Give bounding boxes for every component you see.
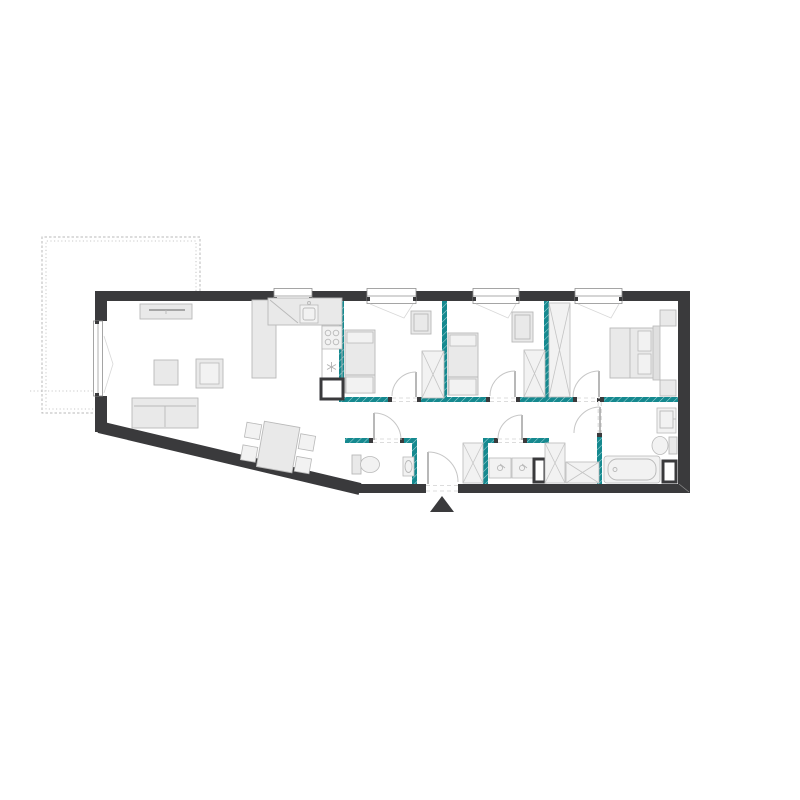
hallway-wall-segment [516, 397, 577, 402]
left-wall-upper [95, 291, 107, 321]
dining-chair [240, 445, 257, 462]
double-bed [610, 326, 660, 380]
bedroom3-door [573, 371, 600, 402]
bottom-wall-left [352, 484, 426, 493]
cabinet [463, 443, 483, 483]
entry-and-bath-middle [463, 443, 599, 483]
living-room [132, 304, 317, 476]
terrace-outer-line [42, 237, 200, 413]
dresser [512, 312, 533, 342]
window [575, 289, 622, 319]
single-bed [345, 330, 375, 393]
kitchen-sink [300, 302, 318, 324]
tv-sideboard [140, 304, 192, 319]
bedroom2-door [490, 371, 516, 402]
floor-plan-page [0, 0, 800, 800]
bedroom1-door [392, 372, 417, 402]
vent-shaft [663, 461, 676, 482]
bathroom-right [604, 408, 677, 483]
top-wall-segment [416, 291, 473, 301]
hallway-wall-segment [339, 397, 392, 402]
bathroom-middle-door [498, 415, 523, 443]
bath-side-wall [483, 443, 488, 484]
bottom-wall-right [458, 484, 690, 493]
dresser [411, 311, 431, 334]
armchair [196, 359, 223, 388]
bedroom-3 [549, 303, 676, 397]
cooktop [322, 326, 342, 349]
wc-wall-segment [345, 438, 373, 443]
toilet [652, 437, 677, 455]
washbasin [657, 408, 676, 433]
toilet [352, 455, 380, 474]
hallway-wall-segment [600, 397, 678, 402]
dining-chair [244, 422, 261, 439]
floor-plan-drawing [0, 0, 800, 800]
washbasin [403, 457, 414, 476]
bedroom-2 [448, 312, 545, 397]
appliance-snowflake-icon [327, 362, 336, 372]
bathtub [604, 456, 660, 483]
dining-table [256, 421, 299, 473]
nightstand [660, 380, 676, 396]
coffee-table [154, 360, 178, 385]
entrance-triangle [430, 496, 454, 512]
balcony-door-window [94, 321, 114, 396]
top-wall-segment [519, 291, 575, 301]
diagonal-wall [99, 427, 360, 489]
sofa [132, 398, 198, 428]
entrance-door [426, 452, 458, 491]
wc-door [373, 413, 401, 443]
terrace-outline [30, 237, 200, 413]
window [367, 289, 416, 319]
dining-chair [294, 456, 311, 473]
single-bed [448, 333, 478, 395]
nightstand [660, 310, 676, 326]
bathroom-right-door [574, 402, 601, 433]
wardrobe [422, 351, 444, 398]
wardrobe [549, 303, 570, 397]
washbasin [512, 458, 533, 478]
dining-chair [298, 434, 315, 451]
kitchen [252, 298, 343, 399]
wc [352, 455, 414, 476]
vent-shaft [534, 459, 545, 482]
wardrobe [524, 350, 545, 397]
washbasin [489, 458, 511, 478]
vent-shaft [321, 379, 343, 399]
wardrobe [545, 443, 565, 483]
right-wall [678, 291, 690, 493]
top-wall-segment [95, 291, 274, 301]
wardrobe-low [566, 462, 599, 483]
